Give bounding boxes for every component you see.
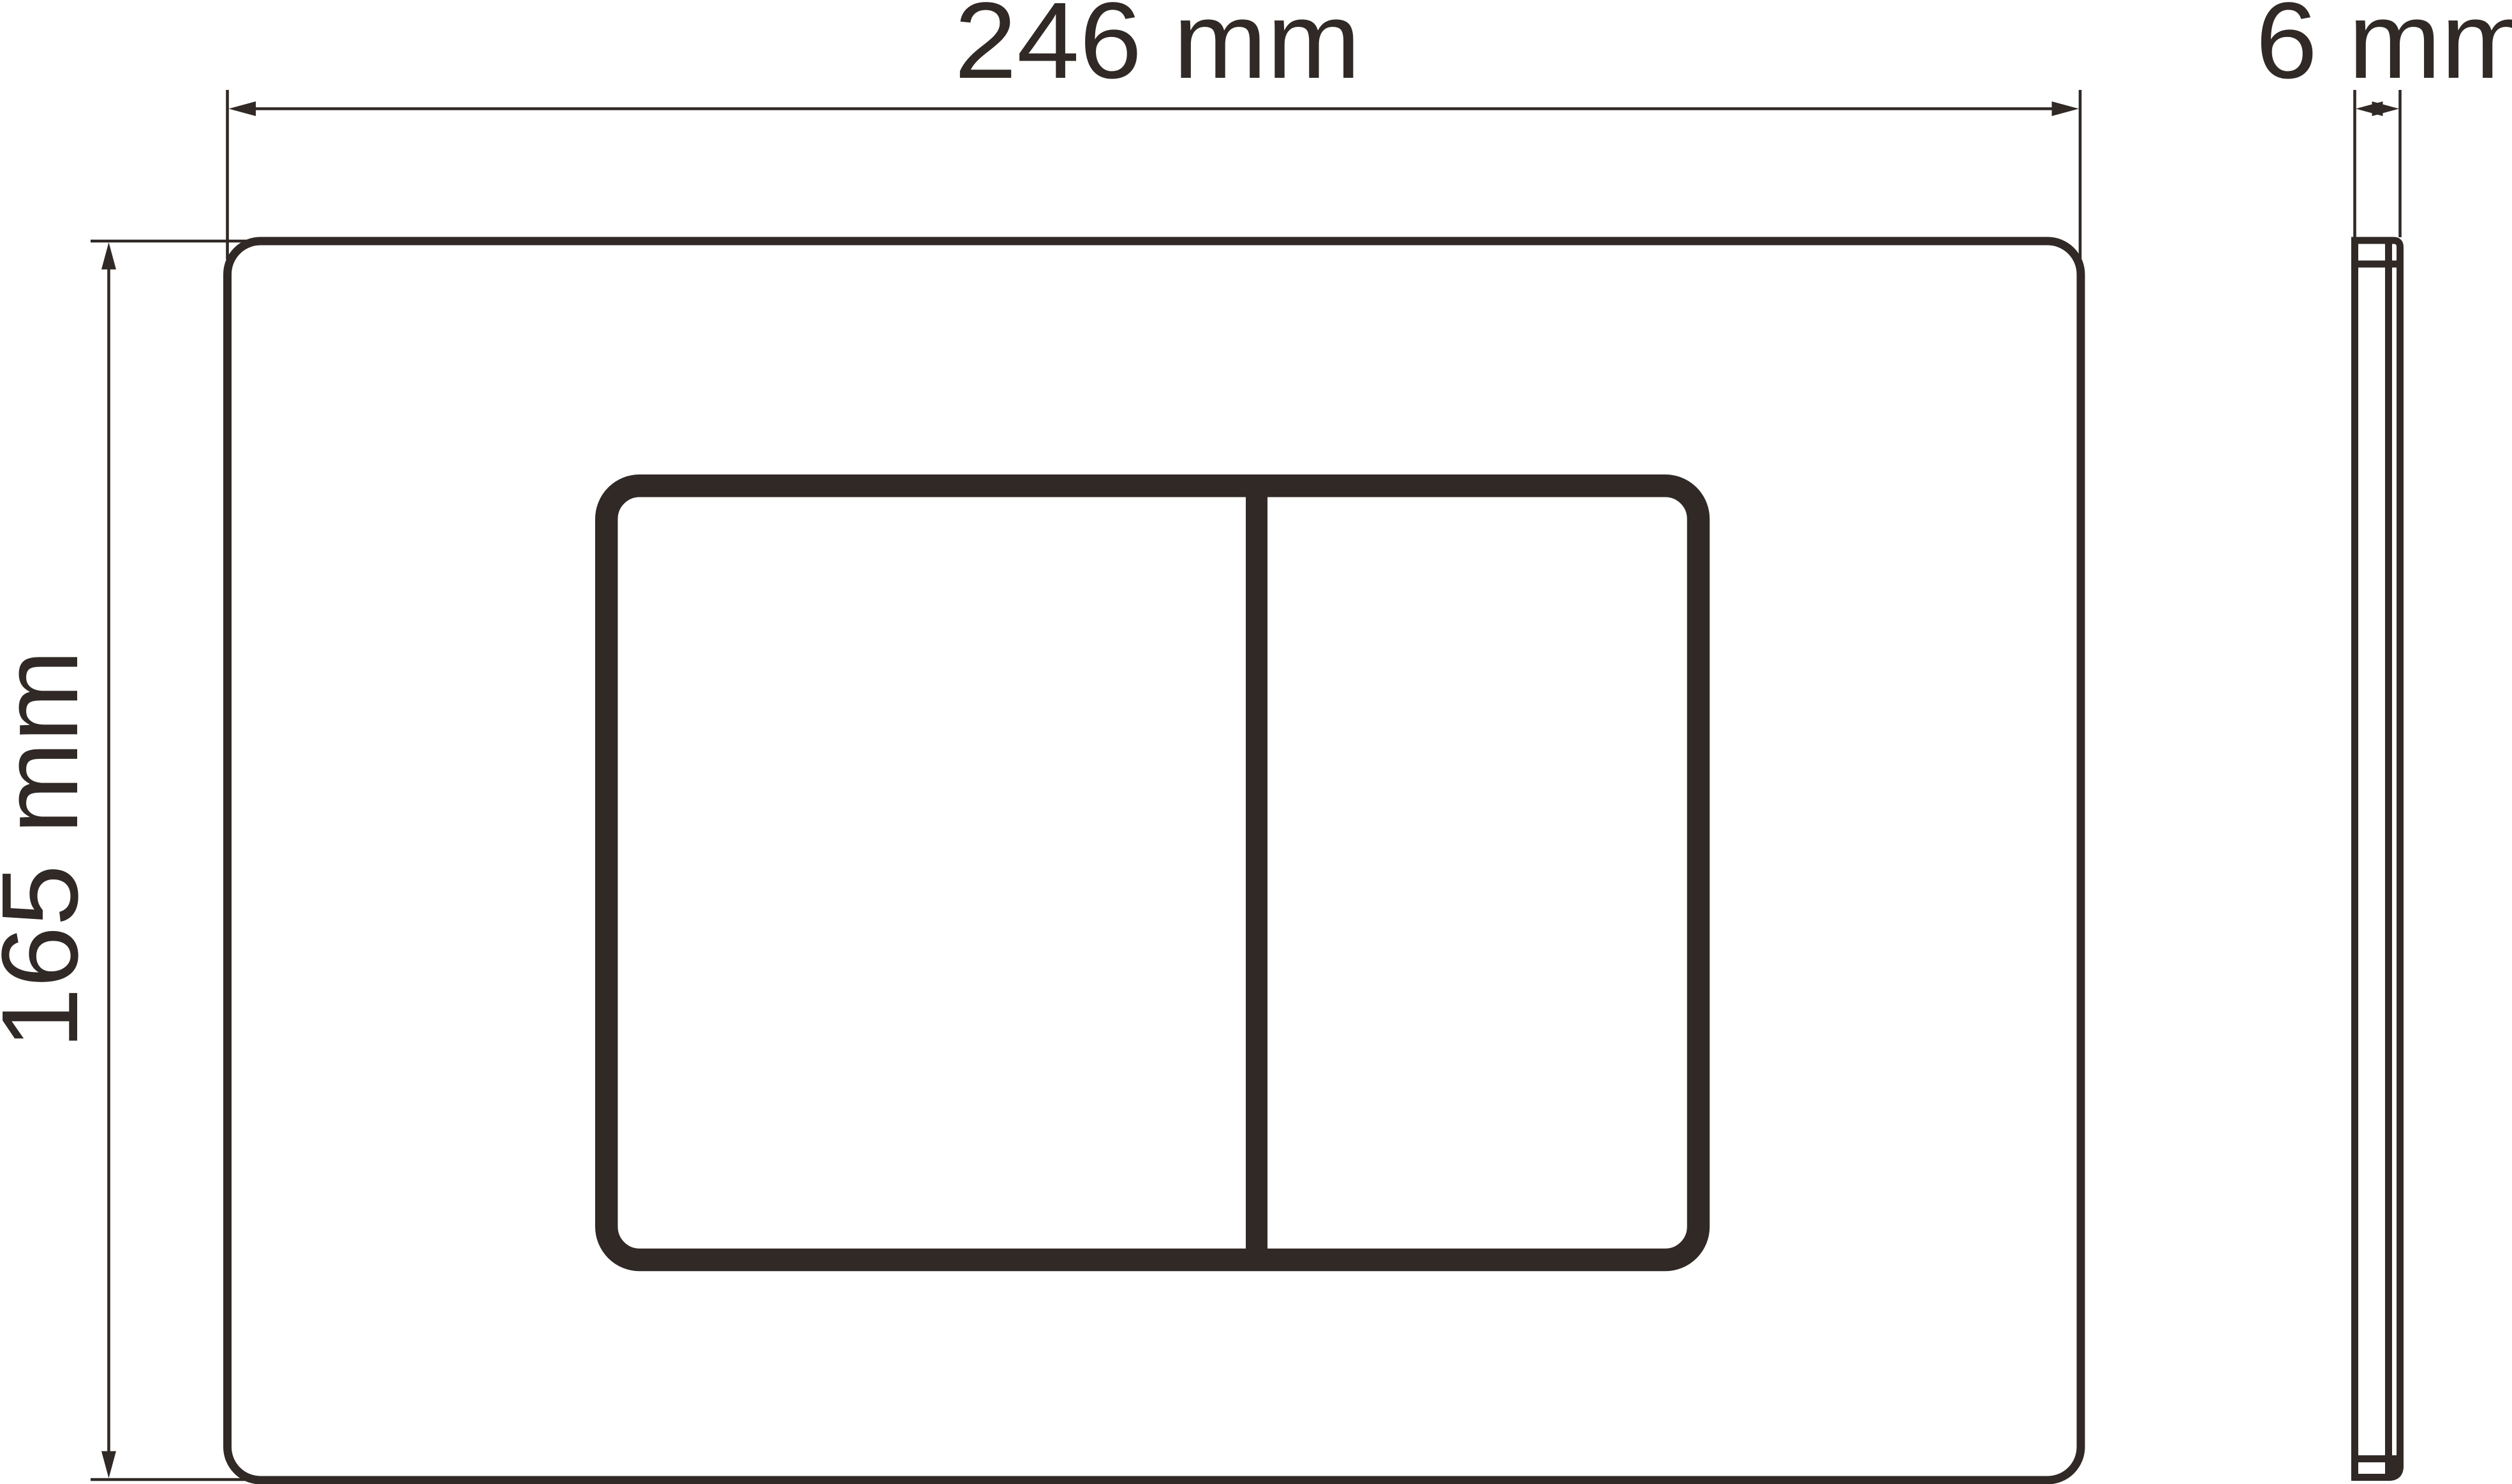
svg-text:165 mm: 165 mm <box>0 650 101 1049</box>
svg-text:246 mm: 246 mm <box>954 0 1361 101</box>
svg-text:6 mm: 6 mm <box>2256 0 2512 101</box>
